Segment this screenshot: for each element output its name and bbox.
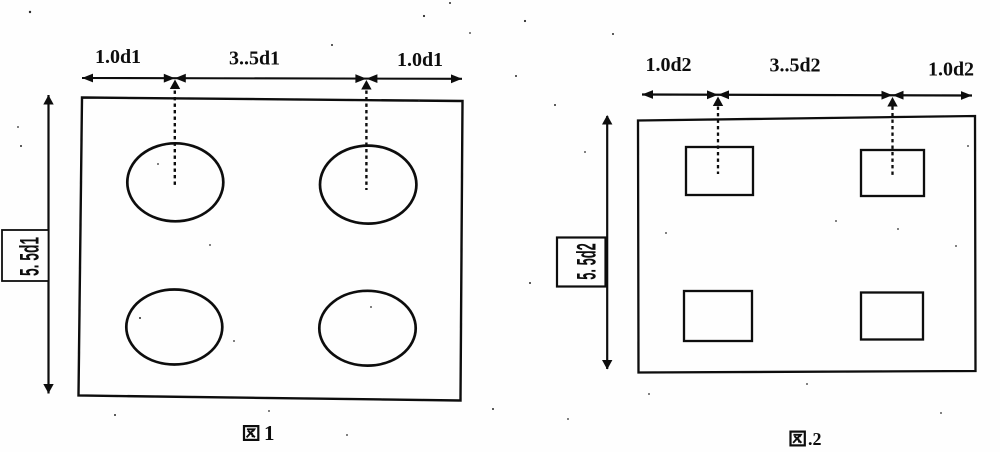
svg-text:3..5d1: 3..5d1 — [229, 48, 280, 70]
svg-text:3..5d2: 3..5d2 — [769, 55, 820, 77]
svg-text:5. 5d2: 5. 5d2 — [572, 243, 602, 280]
svg-text:1: 1 — [264, 421, 275, 445]
svg-text:1.0d2: 1.0d2 — [645, 54, 691, 76]
svg-text:1.0d1: 1.0d1 — [397, 49, 443, 71]
svg-text:1.0d2: 1.0d2 — [928, 59, 974, 81]
svg-text:5. 5d1: 5. 5d1 — [15, 237, 45, 276]
svg-text:1.0d1: 1.0d1 — [95, 46, 141, 68]
svg-text:.2: .2 — [808, 429, 822, 449]
